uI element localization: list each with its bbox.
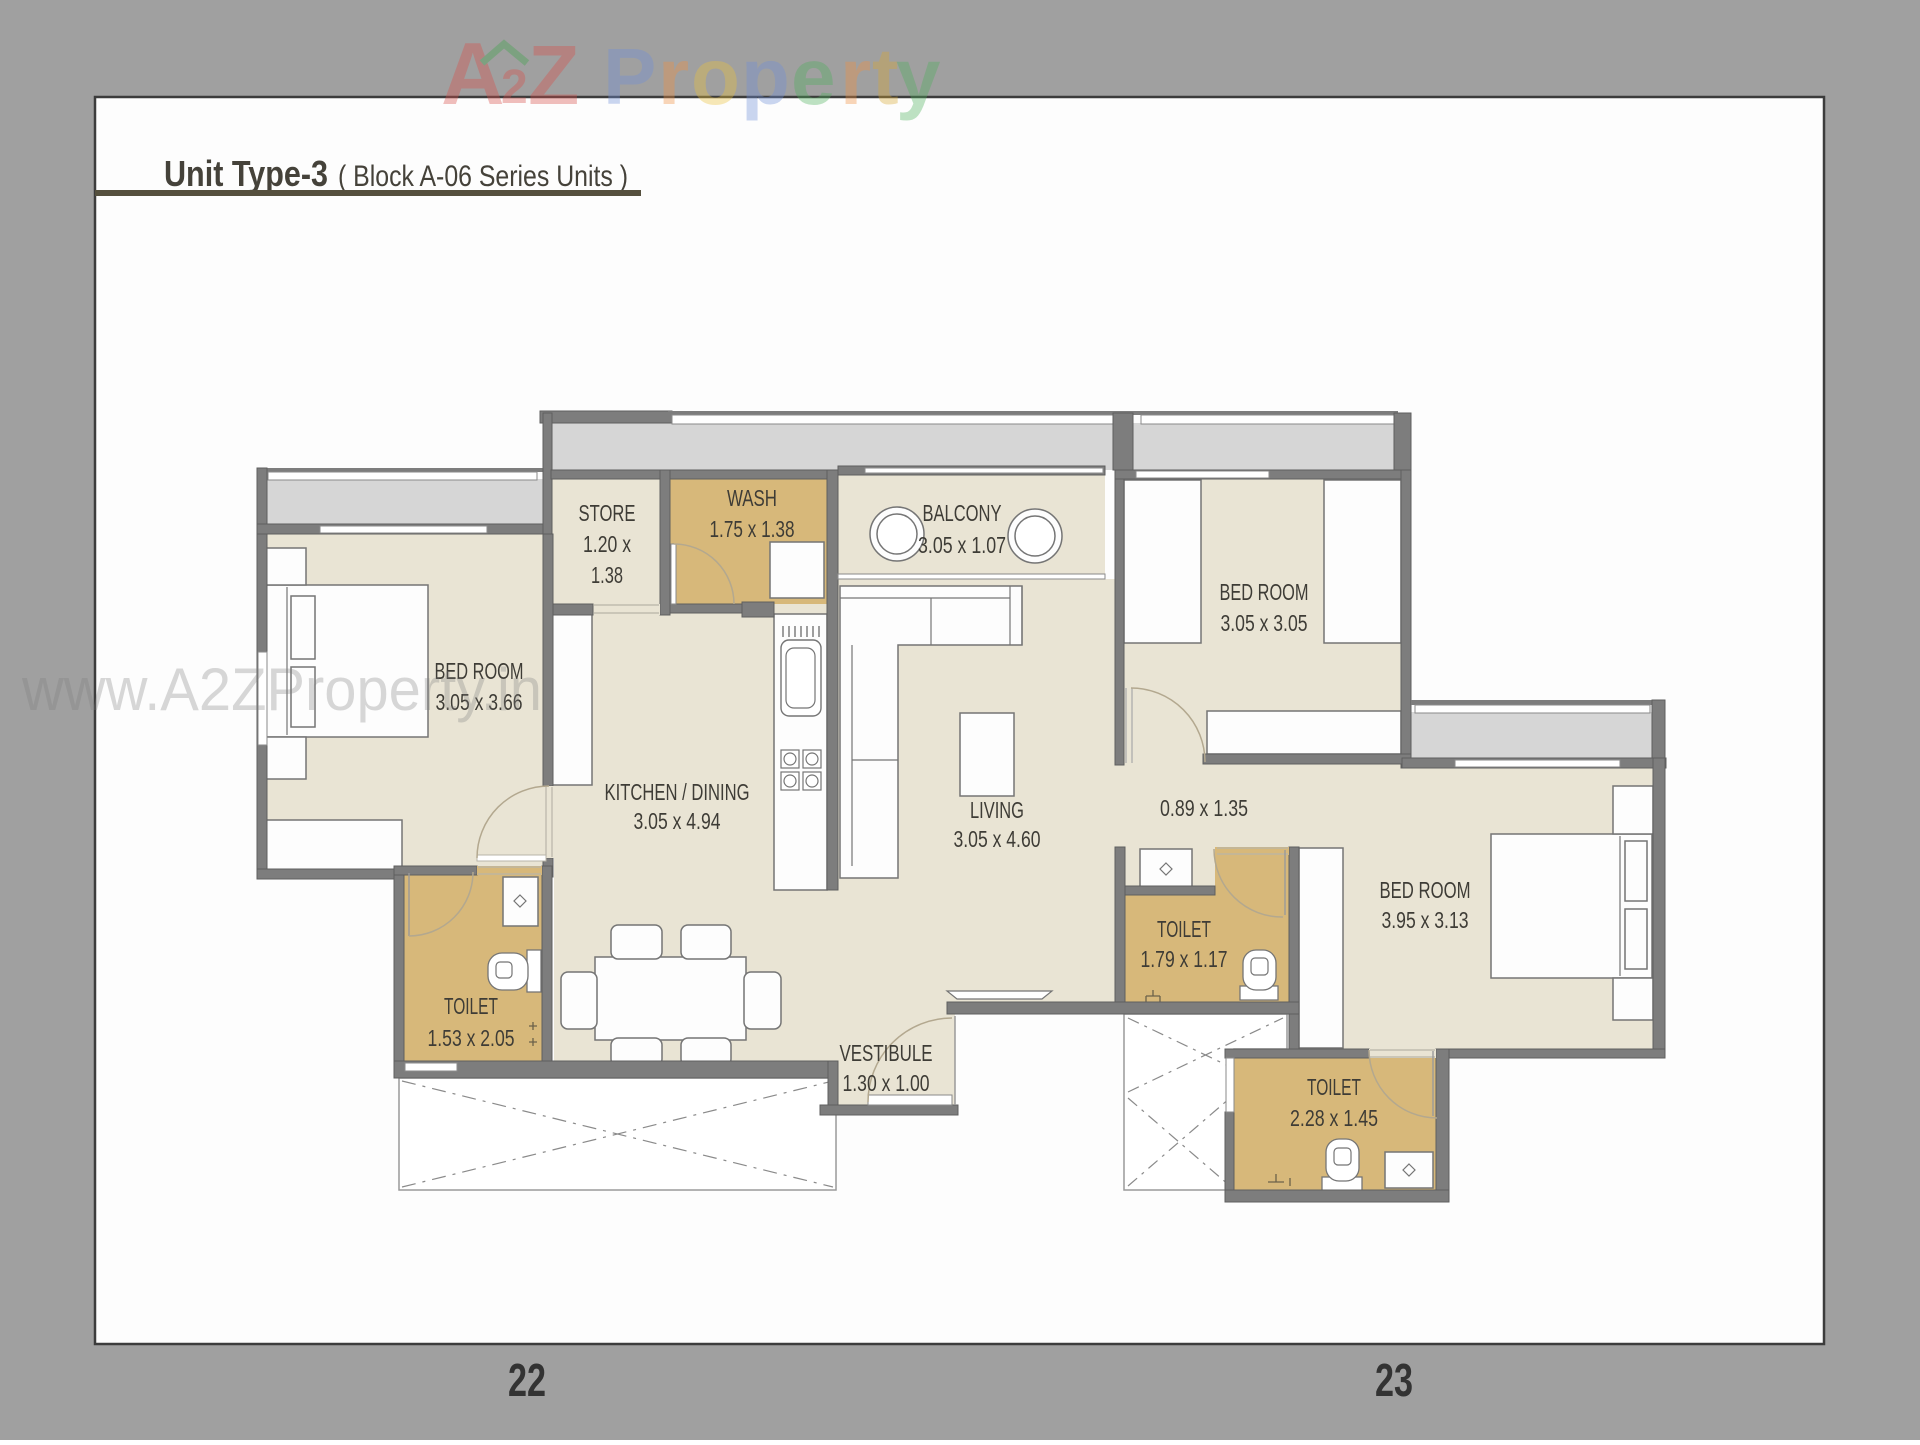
- svg-text:e: e: [791, 32, 836, 121]
- svg-text:A: A: [441, 24, 505, 123]
- svg-text:p: p: [741, 32, 790, 121]
- svg-text:( Block A-06 Series Units ): ( Block A-06 Series Units ): [338, 160, 628, 193]
- svg-text:Z: Z: [528, 28, 579, 122]
- svg-text:1.30 x 1.00: 1.30 x 1.00: [843, 1070, 930, 1096]
- svg-text:t: t: [872, 32, 899, 121]
- svg-text:2: 2: [501, 61, 528, 114]
- svg-text:y: y: [896, 32, 941, 121]
- svg-text:BALCONY: BALCONY: [923, 500, 1002, 526]
- svg-text:TOILET: TOILET: [444, 993, 498, 1019]
- svg-text:23: 23: [1375, 1354, 1413, 1406]
- svg-text:r: r: [840, 32, 871, 121]
- svg-text:BED ROOM: BED ROOM: [1380, 877, 1471, 903]
- svg-text:3.05 x 4.94: 3.05 x 4.94: [634, 808, 721, 834]
- svg-text:3.95 x 3.13: 3.95 x 3.13: [1382, 907, 1469, 933]
- svg-text:1.20 x: 1.20 x: [583, 531, 631, 557]
- svg-text:KITCHEN / DINING: KITCHEN / DINING: [605, 779, 750, 805]
- svg-text:BED ROOM: BED ROOM: [1220, 579, 1309, 605]
- svg-text:2.28 x 1.45: 2.28 x 1.45: [1290, 1105, 1378, 1131]
- svg-text:P: P: [603, 32, 656, 121]
- svg-text:Unit Type-3: Unit Type-3: [164, 153, 328, 194]
- svg-text:STORE: STORE: [579, 500, 636, 526]
- svg-text:LIVING: LIVING: [970, 797, 1024, 823]
- svg-text:1.53 x 2.05: 1.53 x 2.05: [428, 1025, 515, 1051]
- svg-text:TOILET: TOILET: [1307, 1074, 1361, 1100]
- svg-text:22: 22: [508, 1354, 546, 1406]
- svg-text:1.38: 1.38: [591, 562, 623, 588]
- svg-text:r: r: [658, 32, 689, 121]
- svg-text:o: o: [691, 32, 740, 121]
- svg-text:0.89 x 1.35: 0.89 x 1.35: [1160, 795, 1248, 821]
- svg-text:WASH: WASH: [727, 485, 777, 511]
- svg-text:3.05 x 4.60: 3.05 x 4.60: [954, 826, 1041, 852]
- svg-text:3.05 x 3.05: 3.05 x 3.05: [1221, 610, 1308, 636]
- svg-text:VESTIBULE: VESTIBULE: [840, 1040, 933, 1066]
- svg-text:TOILET: TOILET: [1157, 916, 1211, 942]
- svg-text:1.79 x 1.17: 1.79 x 1.17: [1141, 946, 1228, 972]
- svg-text:www.A2ZProperty.in: www.A2ZProperty.in: [21, 656, 542, 723]
- svg-text:3.05 x 1.07: 3.05 x 1.07: [918, 532, 1006, 558]
- svg-text:1.75 x 1.38: 1.75 x 1.38: [710, 516, 795, 542]
